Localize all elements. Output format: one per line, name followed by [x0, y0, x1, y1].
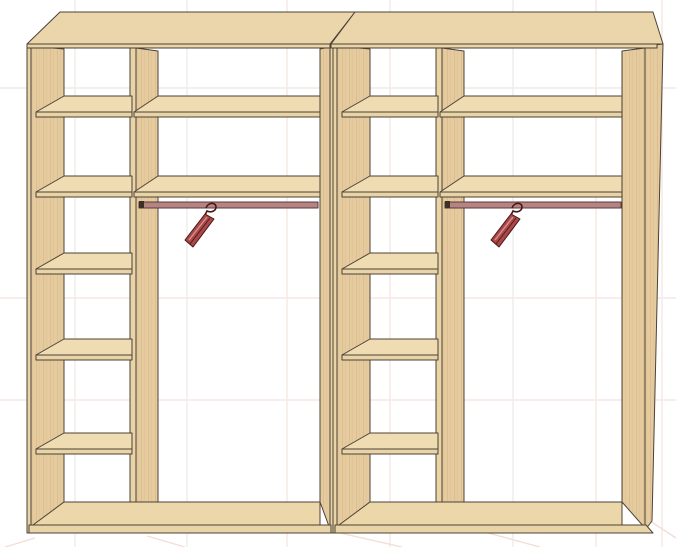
floor-top-surface [339, 502, 622, 525]
top-surface [27, 12, 355, 44]
shelf-front-edge [342, 269, 438, 274]
wood-grain [136, 48, 158, 526]
top-panel[interactable] [27, 12, 355, 48]
shelf-front-edge [36, 449, 132, 454]
shelf-top-surface [440, 176, 622, 192]
clothes-rail[interactable] [445, 201, 621, 208]
shelf-wide-section[interactable] [440, 96, 622, 117]
bottom-panel[interactable] [29, 502, 331, 533]
shelf-wide-section[interactable] [134, 176, 320, 197]
panel-front-edge [333, 45, 337, 533]
shelf-front-edge [342, 192, 438, 197]
clothes-rail[interactable] [139, 201, 318, 208]
shelf-front-edge [36, 269, 132, 274]
top-front-edge [331, 44, 657, 48]
shelf-front-edge [342, 112, 438, 117]
wood-grain [320, 47, 330, 529]
rail-bracket [139, 201, 144, 208]
top-panel[interactable] [331, 12, 663, 48]
shelf-front-edge [440, 192, 622, 197]
shelf-top-surface [134, 96, 320, 112]
divider-panel[interactable] [130, 46, 158, 527]
shelf-wide-section[interactable] [440, 176, 622, 197]
shelf-top-surface [440, 96, 622, 112]
floor-front-edge [335, 525, 653, 533]
left-side-panel[interactable] [333, 45, 370, 533]
wood-grain [31, 46, 64, 528]
bottom-panel[interactable] [335, 502, 653, 533]
shelf-front-edge [440, 112, 622, 117]
wood-grain [622, 48, 645, 528]
shelf-front-edge [134, 112, 320, 117]
rail-bracket [445, 201, 450, 208]
shelf-top-surface [134, 176, 320, 192]
top-surface [331, 12, 663, 44]
shelf-front-edge [36, 355, 132, 360]
wood-grain [442, 48, 464, 526]
panel-front-edge [130, 46, 136, 527]
left-side-panel[interactable] [27, 45, 64, 533]
shelf-wide-section[interactable] [134, 96, 320, 117]
rail-bar[interactable] [139, 202, 318, 208]
floor-front-edge [29, 525, 331, 533]
right-side-panel[interactable] [320, 45, 333, 533]
wardrobe-design-canvas[interactable] [0, 0, 676, 547]
wardrobe-render [0, 0, 676, 547]
shelf-front-edge [342, 355, 438, 360]
panel-front-edge [436, 46, 442, 527]
shelf-front-edge [36, 192, 132, 197]
floor-top-surface [33, 502, 320, 525]
shelf-front-edge [134, 192, 320, 197]
rail-bar[interactable] [445, 202, 621, 208]
panel-front-edge [27, 45, 31, 533]
divider-panel[interactable] [436, 46, 464, 527]
shelf-front-edge [342, 449, 438, 454]
wood-grain [337, 46, 370, 528]
shelf-front-edge [36, 112, 132, 117]
top-front-edge [27, 44, 330, 48]
